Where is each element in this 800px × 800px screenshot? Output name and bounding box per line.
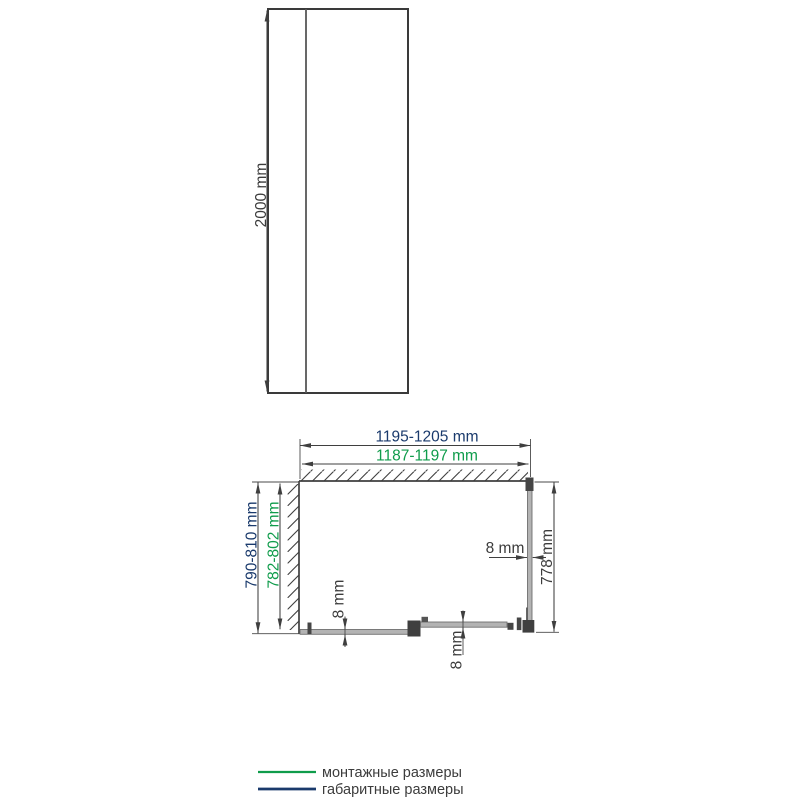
overall-width-label: 1195-1205 mm [375,429,478,446]
legend-overall-label: габаритные размеры [322,782,464,798]
mounting-depth-label: 782-802 mm [266,501,283,588]
front-view: 2000 mm [253,9,408,393]
wall-hatch-left [288,484,299,630]
plan-view: 1195-1205 mm 1187-1197 mm 790-810 mm 782… [244,429,560,670]
height-dimension: 2000 mm [253,11,270,392]
front-glass-panel [268,9,408,393]
glass-thickness-side-dimension: 8 mm [486,540,546,558]
door-glass-panel [421,622,508,627]
door-knob [508,623,514,630]
door-roller-cap [422,617,429,622]
glass-thickness-fixed-label: 8 mm [331,580,348,619]
legend: монтажные размеры габаритные размеры [258,765,464,798]
overall-depth-label: 790-810 mm [244,501,261,588]
side-glass-panel [528,490,533,631]
wall-profile-bottom-left [308,623,312,635]
fixed-front-panel [300,630,414,635]
wall-profile-top-right [526,478,534,492]
door-bracket [517,618,522,631]
glass-thickness-door-dimension: 8 mm [449,611,466,670]
glass-thickness-fixed-dimension: 8 mm [331,580,348,647]
mounting-width-label: 1187-1197 mm [376,448,478,465]
corner-profile-block [523,620,535,633]
legend-mounting-label: монтажные размеры [322,765,462,781]
dimensional-drawing-page: 2000 mm 1195-1205 [0,0,800,800]
panel-connector-block [408,621,421,637]
glass-thickness-side-label: 8 mm [486,540,525,557]
glass-thickness-door-label: 8 mm [449,631,466,670]
wall-hatch-top [301,470,528,481]
technical-drawing: 2000 mm 1195-1205 [0,0,800,800]
height-dimension-label: 2000 mm [253,163,270,228]
